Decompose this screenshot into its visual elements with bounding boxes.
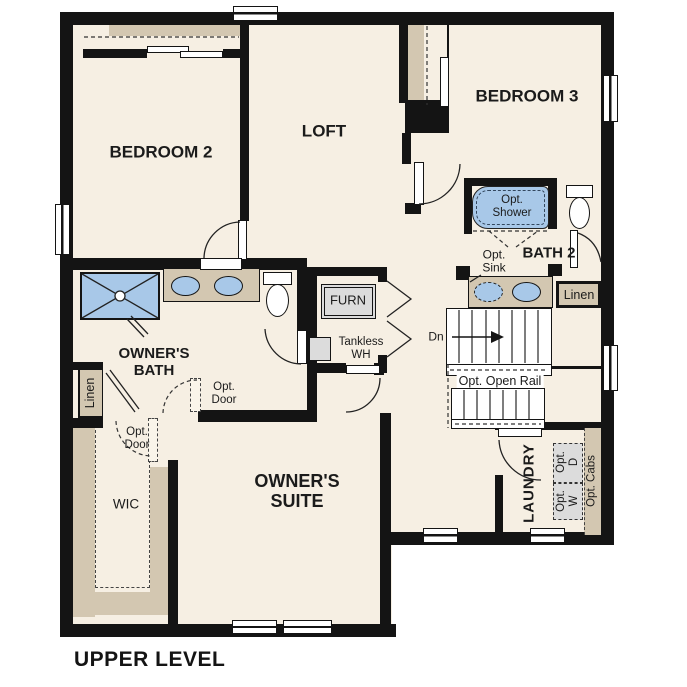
bedroom2-closet-shelf (109, 25, 240, 36)
opt-door-bath-label: Opt. Door (212, 381, 237, 407)
owners-linen-label: Linen (83, 378, 97, 409)
window (233, 6, 278, 21)
laundry-label: LAUNDRY (522, 443, 539, 523)
floor-plan: BEDROOM 2 LOFT BEDROOM 3 Opt. Shower BAT… (0, 0, 687, 687)
window (603, 75, 618, 122)
tankless-water-heater (309, 337, 331, 361)
toilet-owners-bowl (266, 284, 289, 317)
plan-title: UPPER LEVEL (74, 648, 225, 672)
sink-icon (171, 276, 200, 296)
bath2-label: BATH 2 (522, 246, 575, 263)
owners-bath-label: OWNER'S BATH (118, 346, 189, 380)
wic-shelf-right (150, 467, 170, 607)
bedroom3-label: BEDROOM 3 (476, 86, 579, 105)
sink-icon (214, 276, 243, 296)
wall-tub-toilet-divider (548, 178, 557, 229)
wall-bottom-left (60, 624, 396, 637)
wall-tub-top (464, 178, 553, 186)
wic-label: WIC (113, 496, 139, 511)
wall-loft-closet3 (399, 25, 408, 103)
window (423, 528, 458, 543)
wall-linen-bottom (60, 418, 103, 428)
wall-wic-suite (168, 460, 178, 637)
bedroom2-label: BEDROOM 2 (110, 142, 213, 161)
window (603, 345, 618, 391)
bedroom3-door (414, 162, 424, 205)
laundry-door (498, 428, 542, 437)
opt-open-rail-label: Opt. Open Rail (457, 374, 544, 388)
bedroom3-closet-door (440, 57, 449, 107)
tankless-wh-label: Tankless WH (339, 336, 384, 362)
bedroom2-closet-bypass-door (180, 51, 223, 58)
opt-washer-label: Opt. W (555, 490, 581, 512)
wall-closet3-thin (447, 25, 449, 58)
wall-furn-stub-top (378, 267, 387, 282)
wall-hall-bed3 (402, 133, 411, 164)
wall-furn-bottom (307, 363, 346, 373)
window (55, 204, 70, 255)
opt-cabs-label: Opt. Cabs (586, 455, 599, 507)
owners-bath-door-opening (200, 258, 242, 270)
wall-bed2-closet-a (83, 49, 147, 58)
window (283, 620, 332, 634)
owners-toilet-door (297, 330, 307, 364)
optional-door-leaf-bath (190, 378, 201, 412)
shower (80, 272, 160, 320)
owners-suite-label: OWNER'S SUITE (254, 471, 339, 511)
opt-dryer-label: Opt. D (555, 451, 581, 473)
toilet-bath2-bowl (569, 197, 590, 229)
owners-suite-door (346, 365, 380, 374)
stairs-dn-label: Dn (428, 330, 443, 343)
stairs-upper-flight (446, 308, 552, 365)
wall-top (60, 12, 614, 25)
opt-door-wic-label: Opt. Door (125, 426, 150, 452)
wall-tub-left (464, 178, 472, 234)
wall-hall-half (552, 366, 603, 369)
wall-toilet-nook (297, 270, 307, 330)
opt-shower-label: Opt. Shower (493, 194, 532, 220)
wall-laundry-left (495, 475, 503, 533)
window (232, 620, 277, 634)
wall-bed2-loft (240, 25, 249, 221)
sink-optional-icon (474, 282, 503, 302)
wall-furn-top (307, 267, 386, 276)
furnace-label: FURN (330, 294, 366, 309)
wall-bath2-door-stub (548, 264, 562, 276)
wic-shelf-left (73, 425, 95, 617)
bath2-linen-label: Linen (564, 288, 595, 302)
bedroom2-door (238, 220, 247, 260)
wall-bath-south (198, 410, 317, 422)
stairs-lower-flight (451, 388, 545, 421)
loft-label: LOFT (302, 121, 346, 140)
wall-bottom-right (380, 532, 614, 545)
wall-owners-suite-right (380, 413, 391, 637)
window (530, 528, 565, 543)
sink-icon (512, 282, 541, 302)
wall-bed2-closet-b (223, 49, 240, 58)
opt-sink-label: Opt. Sink (482, 249, 505, 276)
wall-left (60, 12, 73, 637)
